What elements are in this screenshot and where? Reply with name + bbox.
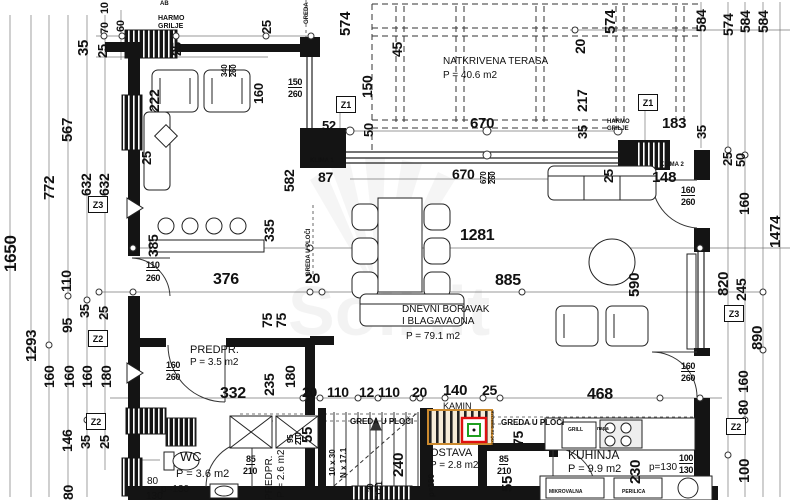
room-label-terasa: NATKRIVENA TERASA — [443, 57, 548, 67]
dim-label: 670 — [452, 167, 474, 181]
dim-label: 217 — [575, 90, 589, 112]
dim-label: 574 — [603, 10, 618, 34]
dim-label: 12 — [359, 385, 374, 399]
dim-label: MIKROVALNA — [549, 490, 583, 495]
dim-label: 574 — [338, 12, 353, 36]
dim-label: 210 — [243, 467, 257, 476]
dim-label: 235 — [262, 374, 276, 396]
dim-label: GRILJE — [607, 126, 629, 132]
dim-label: 55 — [500, 476, 515, 492]
dim-label: 820 — [716, 272, 731, 296]
dim-label: 52 — [322, 119, 336, 132]
dim-label: 584 — [738, 11, 752, 33]
dim-label: 160 — [62, 366, 76, 388]
dim-label: 772 — [42, 176, 57, 200]
dim-label: 10 — [100, 2, 111, 14]
dim-label: 376 — [213, 272, 239, 288]
dim-label: 110 — [378, 385, 400, 399]
zone-marker-z2: Z2 — [88, 330, 108, 347]
dim-label: 260 — [489, 172, 497, 184]
dim-label: 35 — [78, 304, 91, 318]
dim-label: 10 x 30 — [329, 449, 337, 476]
dim-label: 146 — [60, 430, 74, 452]
dim-label: 130 — [146, 492, 163, 500]
dim-label: 75 — [511, 431, 525, 446]
dim-label: 160 — [166, 361, 180, 371]
dim-label: 632 — [97, 174, 111, 196]
dim-label: 85 — [499, 455, 508, 465]
dim-label: p=130 — [428, 474, 436, 497]
dim-label: 110 — [327, 385, 349, 399]
dim-label: P = 2.8 m2 — [430, 461, 478, 471]
dim-label: 260 — [681, 198, 695, 207]
dim-label: P = 79.1 m2 — [406, 332, 460, 342]
dim-label: KLIMA 1 — [310, 158, 334, 164]
dim-label: 670 — [470, 116, 494, 131]
dim-label: 335 — [262, 220, 276, 242]
dim-label: 50 — [362, 123, 375, 137]
dim-label: 150 — [288, 78, 302, 88]
dim-label: 80 — [61, 485, 75, 500]
dim-label: 222 — [147, 90, 161, 112]
dim-label: AB — [160, 1, 169, 7]
dim-label: 95 — [60, 318, 74, 333]
dim-label: 25 — [602, 169, 615, 183]
dim-label: 230 — [628, 460, 643, 484]
dim-label: 385 — [146, 235, 160, 257]
dim-label: GREDA U PLOČI — [350, 418, 413, 426]
dim-label: P = 9.9 m2 — [568, 464, 621, 475]
dim-label: 260 — [288, 90, 302, 99]
dim-label: 632 — [79, 174, 93, 196]
dim-label: P = 40.6 m2 — [443, 71, 497, 81]
room-label-wc: WC — [180, 450, 202, 463]
dim-label: 567 — [60, 118, 75, 142]
dim-label: 25 — [260, 20, 273, 34]
dim-label: 160 — [736, 371, 750, 393]
room-label-dnevni: DNEVNI BORAVAK — [402, 305, 489, 315]
dim-label: GREDA U PLOČI — [501, 419, 564, 427]
dim-label: 35 — [576, 125, 589, 139]
zone-marker-z1: Z1 — [336, 96, 356, 113]
dim-label: HARMO — [607, 119, 630, 125]
dim-label: N x 17.1 — [340, 448, 348, 478]
dim-label: 582 — [282, 170, 296, 192]
dim-label: 160 — [681, 186, 695, 196]
dim-label: 245 — [734, 279, 748, 301]
dim-label: 80 — [147, 477, 158, 487]
zone-marker-z3: Z3 — [88, 196, 108, 213]
dim-label: 35 — [76, 40, 91, 56]
dim-label: 260 — [230, 65, 238, 77]
dim-label: 1293 — [24, 330, 39, 362]
dim-label: 45 — [390, 42, 404, 57]
dim-label: 260 — [166, 373, 180, 382]
dim-label: 160 — [681, 362, 695, 372]
dim-label: 468 — [587, 387, 613, 403]
dim-label: 160 — [737, 193, 751, 215]
zone-marker-z3: Z3 — [724, 305, 744, 322]
dim-label: 35 — [79, 435, 92, 449]
dim-label: I BLAGAVAONA — [402, 317, 474, 327]
dim-label: 584 — [694, 10, 708, 32]
dim-label: 100 — [737, 459, 752, 483]
dim-label: 260 — [146, 274, 160, 283]
dim-label: PLOČ ZA DIMNJAK — [491, 410, 495, 447]
dim-label: 100 — [679, 454, 693, 464]
dim-label: GREDA U PLOČI — [306, 229, 312, 276]
dim-label: 87 — [318, 170, 333, 184]
dim-label: 25 — [140, 151, 153, 165]
dim-label: 110 — [146, 261, 160, 271]
dim-label: 110 — [59, 270, 73, 292]
dim-label: p=130 — [649, 463, 677, 473]
dim-label: 20 — [302, 385, 317, 399]
dim-label: 1474 — [768, 216, 783, 248]
dim-label: 890 — [750, 326, 765, 350]
dim-label: 140 — [443, 383, 467, 398]
dim-label: 160 — [80, 366, 94, 388]
zone-marker-z2: Z2 — [726, 418, 746, 435]
room-label-predpr: PREDPR. — [190, 345, 239, 356]
dim-label: 590 — [627, 273, 642, 297]
room-label-predpr2: PREDPR. — [265, 456, 275, 500]
dim-label: 70 — [100, 22, 111, 34]
dim-label: 584 — [756, 11, 770, 33]
dim-label: 260 — [681, 374, 695, 383]
dim-label: 25 — [97, 306, 110, 320]
dim-label: 574 — [721, 14, 735, 36]
dim-label: 75 — [274, 313, 288, 328]
dim-label: KLIMA 2 — [660, 162, 684, 168]
zone-marker-z1: Z1 — [638, 94, 658, 111]
room-label-ostava: OSTAVA — [430, 448, 472, 459]
dim-label: 183 — [662, 116, 686, 131]
dim-label: PERILICA — [622, 490, 645, 495]
dim-label: 25 — [170, 42, 183, 56]
room-label-kuhinja: KUHINJA — [568, 449, 619, 461]
dim-label: P = 2.6 m2 — [277, 450, 287, 498]
dim-label: 332 — [220, 386, 246, 402]
dim-label: 160 — [252, 83, 265, 104]
dim-label: napa — [597, 427, 609, 432]
dim-label: 210 — [497, 467, 511, 476]
dim-label: 160 — [42, 366, 56, 388]
dim-label: 17.1 — [376, 482, 384, 496]
dim-label: 148 — [652, 170, 676, 185]
dim-label: 20 — [412, 385, 427, 399]
labels-layer: 1650129377256763263211095352516016016018… — [0, 0, 800, 500]
dim-label: 1650 — [2, 235, 19, 272]
dim-label: 85 — [246, 455, 255, 465]
dim-label: 180 — [99, 366, 113, 388]
room-label-kamin: KAMIN — [443, 402, 472, 411]
dim-label: GRILL — [568, 428, 583, 433]
dim-label: 1281 — [460, 228, 494, 244]
dim-label: 25 — [98, 435, 111, 449]
dim-label: 130 — [679, 466, 693, 475]
floorplan-canvas: SolHit — [0, 0, 800, 500]
dim-label: 60 — [116, 20, 127, 32]
dim-label: P = 3.5 m2 — [190, 358, 238, 368]
dim-label: p=130 — [161, 485, 189, 495]
dim-label: P = 3.6 m2 — [176, 469, 229, 480]
dim-label: 240 — [391, 453, 406, 477]
dim-label: 35 — [695, 125, 708, 139]
dim-label: HARMO — [158, 15, 184, 22]
dim-label: 20 — [573, 39, 587, 54]
zone-marker-z2: Z2 — [86, 413, 106, 430]
dim-label: GRILJE — [158, 23, 183, 30]
dim-label: GREDA — [304, 2, 310, 24]
dim-label: 75 — [260, 313, 274, 328]
dim-label: 210 — [295, 433, 303, 445]
dim-label: 150 — [360, 76, 374, 98]
dim-label: 885 — [495, 273, 521, 289]
dim-label: 180 — [283, 366, 297, 388]
dim-label: 50 — [734, 153, 747, 167]
dim-label: 25 — [96, 44, 109, 58]
dim-label: 25 — [482, 383, 497, 397]
dim-label: 80 — [736, 400, 750, 415]
